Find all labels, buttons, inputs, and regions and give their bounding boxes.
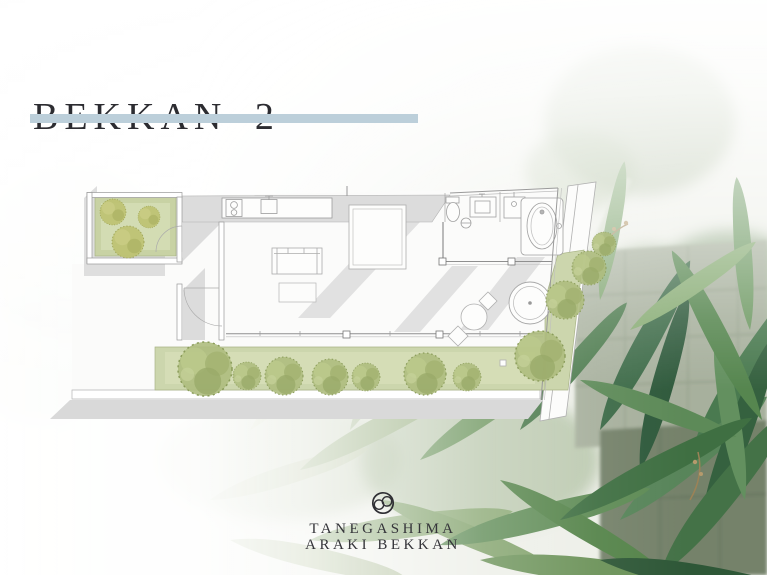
sofa — [272, 248, 322, 274]
kitchen-counter — [222, 196, 332, 218]
terrace-deck — [72, 390, 540, 399]
toilet — [447, 203, 460, 222]
title-underline — [30, 114, 418, 123]
gas-stove — [226, 200, 242, 217]
bed — [349, 205, 406, 269]
presentation-slide: BEKKAN 2 TANEGASHIMA ARAKI BEKKAN — [0, 0, 767, 575]
kitchen-sink — [261, 200, 277, 214]
brand-name-line2: ARAKI BEKKAN — [283, 537, 483, 553]
coffee-table — [279, 283, 316, 302]
outdoor-round-bath — [509, 282, 551, 324]
double-ring-icon — [359, 489, 407, 517]
brand-logo: TANEGASHIMA ARAKI BEKKAN — [283, 489, 483, 553]
toilet-tank — [446, 197, 459, 203]
brand-name-line1: TANEGASHIMA — [283, 521, 483, 537]
walkway-shadow — [50, 400, 543, 419]
